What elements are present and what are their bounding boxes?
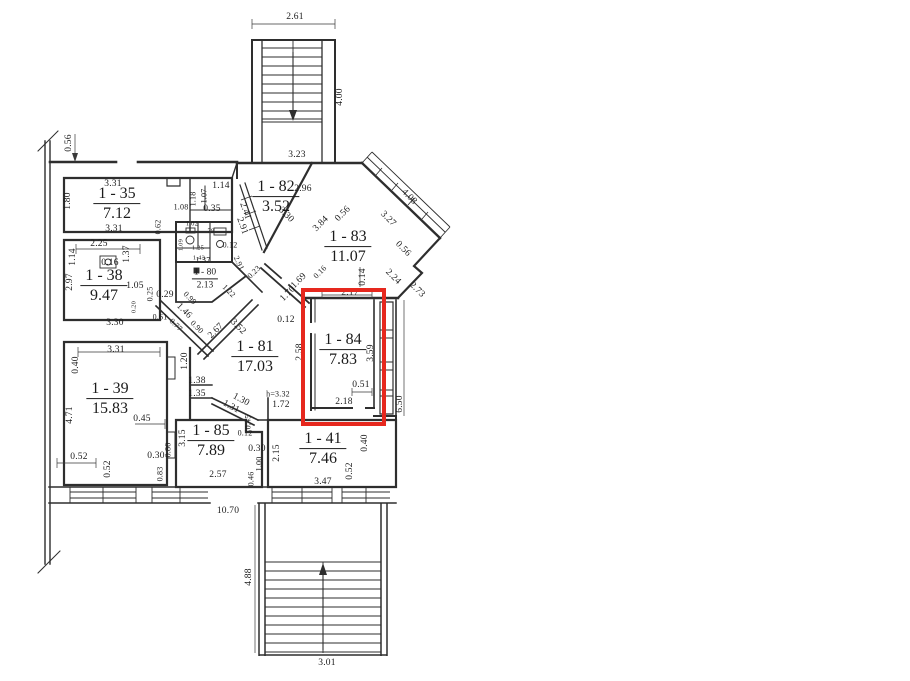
- dim-label: 0.45: [244, 415, 253, 430]
- dim-label: 1.05: [126, 281, 143, 291]
- dim-label: 10.70: [217, 506, 239, 516]
- dim-label: 0.83: [156, 467, 165, 482]
- dim-label: 0.29: [156, 290, 173, 300]
- dim-label: 0.45: [133, 414, 150, 424]
- dim-label: 3.30: [106, 318, 123, 328]
- dim-label: 0.52: [70, 452, 87, 462]
- room-label-1-83: 1 - 8311.07: [324, 228, 371, 266]
- dim-label: 0.12: [238, 429, 253, 438]
- dim-label: 4.71: [65, 406, 75, 423]
- dim-label: 0.30: [147, 451, 164, 461]
- dim-label: 3.31: [107, 345, 124, 355]
- dim-label: 4.88: [244, 568, 254, 585]
- dim-label: 2.15: [272, 444, 282, 461]
- floorplan-linework: [0, 0, 910, 681]
- dim-label: 6.50: [395, 395, 405, 412]
- dim-label: 1.25: [192, 245, 204, 252]
- dim-label: 0.61: [153, 313, 168, 322]
- dim-label: 0.56: [64, 134, 74, 151]
- dim-label: 0.52: [103, 460, 113, 477]
- dim-label: 1.35: [188, 389, 205, 399]
- dim-label: 0.16: [101, 258, 118, 268]
- dim-label: 1.18: [189, 192, 198, 207]
- bottom-staircase: [259, 503, 387, 656]
- dim-label: 1.80: [63, 192, 73, 209]
- dim-label: 1.37: [196, 256, 211, 265]
- dim-label: 3.47: [314, 477, 331, 487]
- dim-label: 2.57: [209, 470, 226, 480]
- dim-label: 1.38: [188, 376, 205, 386]
- room-label-1-80: 1 - 802.13: [192, 267, 218, 290]
- dim-label: 3.23: [288, 150, 305, 160]
- dim-label: 1.14: [212, 181, 229, 191]
- room-label-1-41: 1 - 417.46: [299, 430, 346, 468]
- dim-label: 3.31: [105, 224, 122, 234]
- dim-label: 1.08: [174, 203, 189, 212]
- dim-label: h=3.32: [266, 390, 290, 399]
- dim-label: 0.40: [360, 434, 370, 451]
- dim-label: 1.00: [255, 457, 264, 472]
- highlight-box-room-1-84: [301, 288, 386, 426]
- dim-label: 1.02: [186, 221, 198, 228]
- dim-label: 0.80: [164, 443, 173, 458]
- room-label-1-82: 1 - 823.52: [252, 178, 299, 216]
- dim-label: 1.37: [122, 245, 132, 262]
- door-arrow: [72, 153, 78, 162]
- dim-label: 4.00: [335, 88, 345, 105]
- dim-label: 0.12: [277, 315, 294, 325]
- dim-label: 0.25: [146, 287, 155, 302]
- dim-label: 3.01: [318, 658, 335, 668]
- room-label-1-85: 1 - 857.89: [187, 422, 234, 460]
- room-label-1-35: 1 - 357.12: [93, 185, 140, 223]
- dim-label: 0.30: [248, 444, 265, 454]
- dim-label: 0.40: [71, 356, 81, 373]
- room-label-1-81: 1 - 8117.03: [231, 338, 278, 376]
- room-label-1-38: 1 - 389.47: [80, 267, 127, 305]
- dim-label: 1.07: [200, 189, 209, 204]
- dim-label: 0.52: [345, 462, 355, 479]
- dim-label: 2.97: [65, 273, 75, 290]
- dim-label: 0.14: [358, 268, 368, 285]
- dim-label: 1.14: [68, 248, 78, 265]
- dim-label: 1.09: [178, 239, 185, 251]
- top-staircase: [252, 40, 335, 163]
- dim-label: 2.25: [90, 239, 107, 249]
- dim-label: 0.35: [203, 204, 220, 214]
- room-label-1-39: 1 - 3915.83: [86, 380, 133, 418]
- dim-label: 2.61: [286, 12, 303, 22]
- dim-label: 2.96: [294, 184, 311, 194]
- dim-label: 79: [208, 228, 215, 235]
- dim-label: 0.62: [154, 220, 163, 235]
- dim-label: 0.46: [247, 472, 256, 487]
- dim-label: 3.31: [104, 179, 121, 189]
- dim-label: 1.72: [272, 400, 289, 410]
- dim-label: 0.12: [223, 241, 238, 250]
- dim-label: 1.20: [180, 352, 190, 369]
- floor-plan: 1 - 357.12 1 - 389.47 1 - 3915.83 1 - 81…: [0, 0, 910, 681]
- dim-label: 0.20: [131, 301, 138, 313]
- dim-label: 3.15: [178, 429, 188, 446]
